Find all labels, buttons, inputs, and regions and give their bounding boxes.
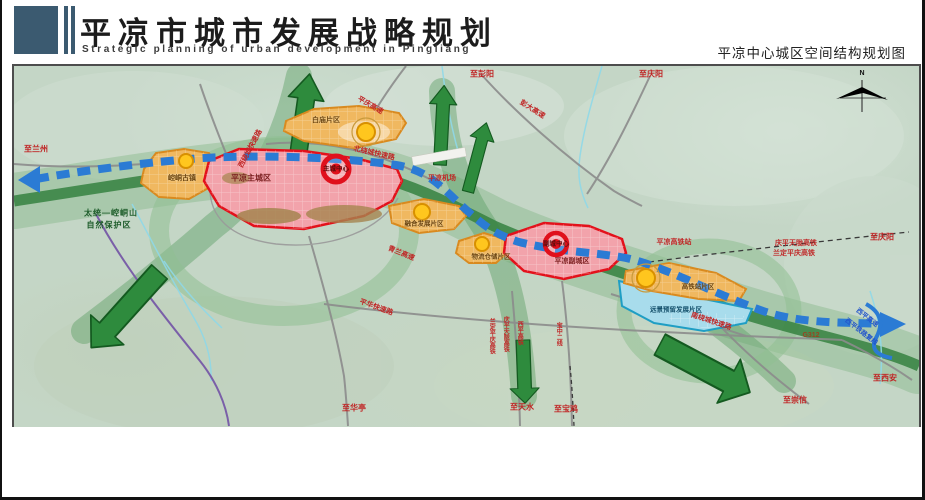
- spatial-structure-map: 至兰州 太统—崆峒山 自然保护区 崆峒古镇 白庙片区 西绕城快速路 北绕城快速路…: [12, 64, 921, 429]
- map-subtitle: 平凉中心城区空间结构规划图: [718, 42, 907, 62]
- page-title-english: Strategic planning of urban development …: [82, 44, 471, 55]
- header-accent-bar: [64, 6, 68, 54]
- footer: “一环一带五廊、两城六片区”双核城市结构 平凉市委市政府 10: [2, 427, 925, 497]
- header-accent-square: [14, 6, 58, 54]
- planning-document-page: 平凉市城市发展战略规划 Strategic planning of urban …: [0, 0, 925, 500]
- header-accent-bar: [71, 6, 75, 54]
- map-canvas: [14, 66, 919, 427]
